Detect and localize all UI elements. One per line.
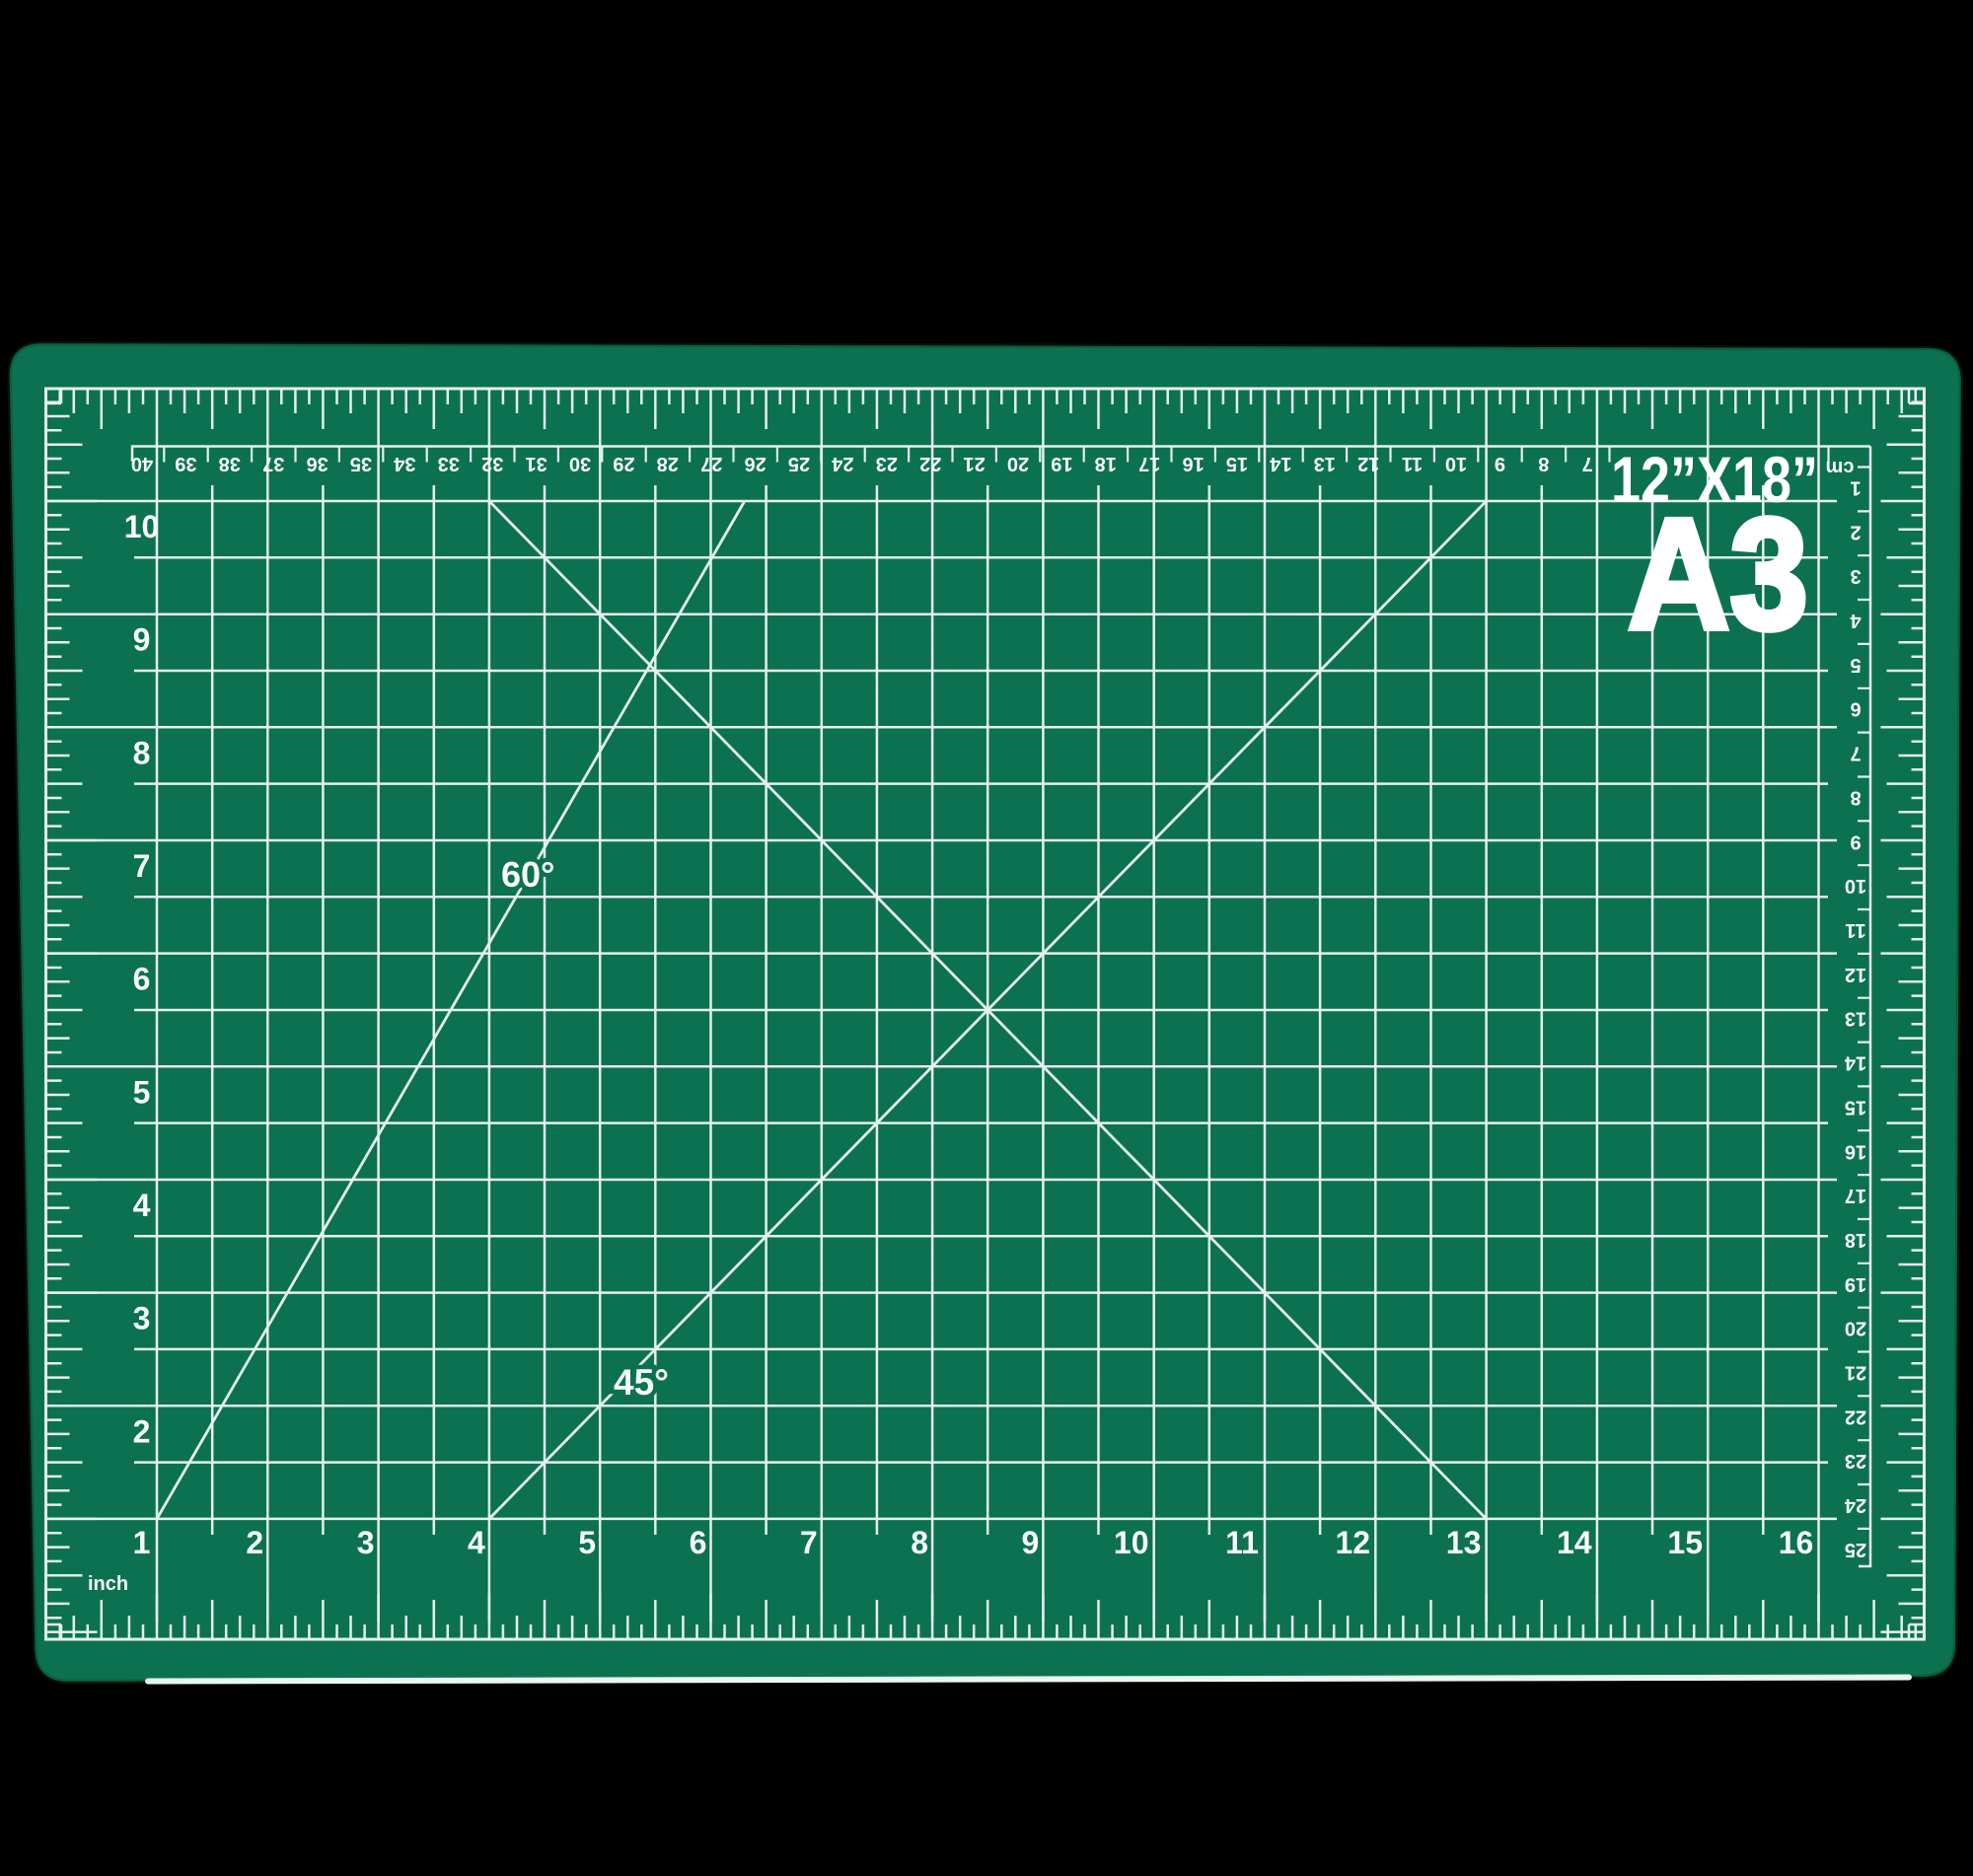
svg-text:39: 39 xyxy=(175,453,196,474)
svg-text:4: 4 xyxy=(133,1188,151,1223)
svg-text:13: 13 xyxy=(1446,1525,1482,1560)
svg-text:7: 7 xyxy=(800,1525,818,1560)
svg-text:19: 19 xyxy=(1845,1273,1866,1295)
svg-text:14: 14 xyxy=(1269,453,1291,474)
svg-text:17: 17 xyxy=(1845,1185,1866,1206)
svg-text:38: 38 xyxy=(219,453,241,474)
svg-text:20: 20 xyxy=(1007,453,1029,474)
svg-text:10: 10 xyxy=(1114,1525,1149,1560)
svg-text:14: 14 xyxy=(1557,1525,1592,1560)
svg-text:60°: 60° xyxy=(501,854,554,895)
svg-text:2: 2 xyxy=(246,1525,263,1560)
svg-text:27: 27 xyxy=(700,453,722,474)
svg-text:9: 9 xyxy=(1850,830,1861,852)
svg-text:15: 15 xyxy=(1667,1525,1703,1560)
svg-text:16: 16 xyxy=(1845,1140,1866,1162)
svg-text:7: 7 xyxy=(133,848,151,884)
svg-text:inch: inch xyxy=(88,1573,128,1595)
svg-text:21: 21 xyxy=(963,453,985,474)
svg-text:22: 22 xyxy=(919,453,941,474)
svg-text:10: 10 xyxy=(1445,453,1467,474)
svg-text:15: 15 xyxy=(1226,453,1248,474)
svg-text:6: 6 xyxy=(690,1525,707,1560)
svg-text:9: 9 xyxy=(1495,453,1505,474)
svg-text:11: 11 xyxy=(1845,919,1865,941)
svg-text:2: 2 xyxy=(1850,521,1861,542)
svg-text:11: 11 xyxy=(1402,453,1423,474)
svg-text:22: 22 xyxy=(1845,1406,1866,1427)
svg-text:36: 36 xyxy=(306,453,328,474)
svg-text:35: 35 xyxy=(350,453,372,474)
svg-text:25: 25 xyxy=(788,453,810,474)
svg-text:17: 17 xyxy=(1138,453,1160,474)
svg-text:28: 28 xyxy=(657,453,679,474)
svg-text:2: 2 xyxy=(133,1413,151,1449)
svg-text:7: 7 xyxy=(1850,743,1861,764)
svg-text:4: 4 xyxy=(468,1525,485,1560)
svg-text:1: 1 xyxy=(133,1525,151,1560)
svg-text:6: 6 xyxy=(1850,698,1861,720)
svg-text:18: 18 xyxy=(1095,453,1117,474)
svg-text:26: 26 xyxy=(744,453,766,474)
svg-text:30: 30 xyxy=(569,453,591,474)
svg-text:12: 12 xyxy=(1845,964,1866,985)
svg-text:31: 31 xyxy=(525,453,547,474)
svg-text:45°: 45° xyxy=(614,1362,669,1403)
svg-text:20: 20 xyxy=(1845,1318,1866,1339)
svg-text:4: 4 xyxy=(1850,610,1862,631)
svg-text:24: 24 xyxy=(831,453,853,474)
svg-text:8: 8 xyxy=(1538,453,1549,474)
svg-text:5: 5 xyxy=(1850,654,1861,676)
svg-text:8: 8 xyxy=(911,1525,928,1560)
svg-text:19: 19 xyxy=(1051,453,1072,474)
svg-text:11: 11 xyxy=(1225,1525,1259,1560)
svg-text:33: 33 xyxy=(438,453,460,474)
svg-text:21: 21 xyxy=(1845,1362,1866,1384)
svg-text:6: 6 xyxy=(133,962,151,997)
svg-text:1: 1 xyxy=(1850,477,1861,499)
svg-text:13: 13 xyxy=(1314,453,1336,474)
svg-text:A3: A3 xyxy=(1628,485,1808,662)
svg-text:5: 5 xyxy=(133,1074,151,1110)
svg-text:13: 13 xyxy=(1845,1008,1866,1030)
svg-text:5: 5 xyxy=(578,1525,596,1560)
svg-text:3: 3 xyxy=(1850,565,1861,587)
svg-text:40: 40 xyxy=(131,453,153,474)
svg-text:23: 23 xyxy=(1845,1450,1866,1472)
svg-text:3: 3 xyxy=(133,1301,151,1336)
svg-text:32: 32 xyxy=(481,453,503,474)
svg-text:8: 8 xyxy=(133,735,151,770)
svg-text:14: 14 xyxy=(1844,1052,1866,1074)
svg-text:18: 18 xyxy=(1845,1229,1866,1251)
svg-text:12: 12 xyxy=(1357,453,1379,474)
svg-text:12: 12 xyxy=(1336,1525,1371,1560)
svg-text:29: 29 xyxy=(613,453,634,474)
svg-text:8: 8 xyxy=(1850,787,1861,809)
svg-text:7: 7 xyxy=(1582,453,1593,474)
svg-text:10: 10 xyxy=(124,509,160,544)
svg-text:23: 23 xyxy=(876,453,898,474)
svg-text:34: 34 xyxy=(393,453,415,474)
svg-text:3: 3 xyxy=(357,1525,375,1560)
svg-text:37: 37 xyxy=(262,453,284,474)
svg-text:16: 16 xyxy=(1779,1525,1814,1560)
svg-text:24: 24 xyxy=(1844,1494,1866,1516)
svg-text:10: 10 xyxy=(1845,875,1866,897)
svg-text:9: 9 xyxy=(1022,1525,1040,1560)
svg-text:16: 16 xyxy=(1182,453,1204,474)
svg-text:25: 25 xyxy=(1845,1539,1866,1560)
svg-text:9: 9 xyxy=(133,622,151,658)
svg-text:cm: cm xyxy=(1826,457,1855,478)
svg-text:15: 15 xyxy=(1845,1096,1866,1118)
